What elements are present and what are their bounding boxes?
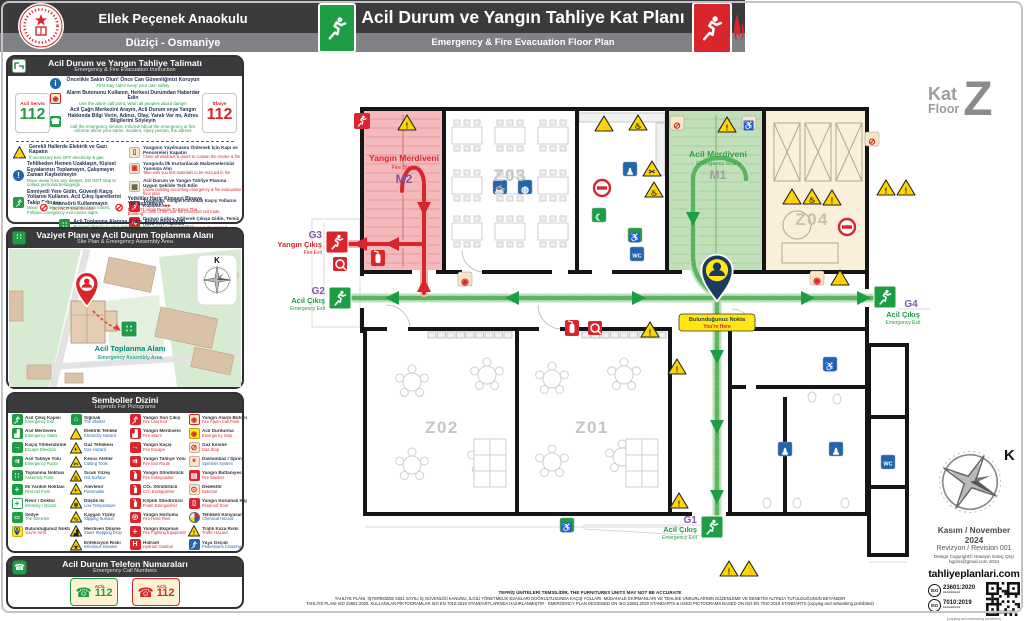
svg-text:♟: ♟ [832,446,840,456]
legend-label-en: Fire Extinguisher [143,476,184,480]
phone-112-icon: ☎ [12,560,27,580]
copyright-email: hgcitci@gmail.com 2024 [949,559,999,564]
svg-text:M2: M2 [396,172,413,186]
instruction-en: Leave building according emergency & fir… [143,188,242,197]
svg-text:◍: ◍ [521,184,529,194]
legend-item: ∿Kaygan YüzeySlipping Surface [70,510,129,524]
exitr-icon [129,414,141,425]
svg-text:♨: ♨ [650,189,657,198]
fire-dept-number: 112 [207,107,233,123]
legend-column: ⌂SığınakThe Shelter⚡Elektrik TehlikeElec… [70,413,129,552]
tri-icon: ∿ [70,511,82,523]
legend-item: Köpük SöndürücüFoam Extinguisher [129,496,188,510]
legend-label-en: Slipping Surface [84,517,115,521]
green-route-arrow [385,291,399,305]
legend-item: Acil Çıkış KapısıEmergency Exit [11,413,70,427]
instruction-item: ◉Alarm Butonunu Kullanın, Herkesi Durumd… [50,91,202,106]
legend-label-en: Electricity Hazard [84,434,117,438]
instruction-en: Move away from any danger, DO NOT stop t… [27,179,126,188]
triflame-icon [70,483,82,495]
instruction-item: ⊘Yetkililer Hariç Kimseyi Binaya Yaklaşt… [114,197,214,217]
legend-label-en: Infectious Disease [84,545,121,549]
exit-g2: G2Acil ÇıkışEmergency Exit [290,286,351,312]
gascut-icon: ⊘ [188,442,200,453]
instruction-text: Öncelikle Sakin Olun! Önce Can Güvenliği… [64,78,202,88]
legend-label-en: Fire Fighting Equipment [143,531,186,535]
router-icon: ⇉ [129,456,141,467]
ministry-logo [18,3,64,49]
assembly-point-icon: ∷ [12,231,26,250]
instruction-en: If necessary turn OFF electricity & gas [29,156,126,161]
legend-label-en: Fire Blanket [202,476,243,480]
legend-item: ☣Enfeksiyon RiskiInfectious Disease [70,538,129,552]
disclaimer: TEFRİŞ ÜNİTELERİ TEMSİLİDİR. THE FURNITU… [250,590,930,606]
svg-text:⚡: ⚡ [72,432,79,440]
site-map-svg: ∷Acil Toplanma AlanıEmergency Assembly A… [9,249,241,387]
accessible-wc-icon: ♿ [823,357,837,371]
svg-text:♟: ♟ [626,166,634,176]
fire-exit-icon [692,2,732,54]
tri-icon: ⚡ [70,428,82,440]
svg-text:Emergency Exit: Emergency Exit [290,306,326,312]
svg-text:⚡: ⚡ [599,122,609,132]
svg-text:♨: ♨ [634,122,641,131]
svg-text:◉: ◉ [813,275,821,285]
svg-text:WC: WC [632,253,641,259]
svg-text:K: K [214,256,220,265]
page-title: Acil Durum ve Yangın Tahliye Kat Planı [356,4,690,31]
rescue-icon: ▣ [129,163,140,174]
warn-icon: ⚡ [13,146,26,159]
aidg-icon: + [11,484,23,495]
warning-icon: ! [877,180,895,196]
dirg-icon: → [11,442,23,453]
shelter-icon: ⌂ [70,414,82,425]
legend-item: →Kaçış YönlendirmeEscape Direction [11,441,70,455]
svg-text:∷: ∷ [16,233,21,242]
svg-text:Fire Exit: Fire Exit [304,250,323,256]
instruction-item: ▯Yangının Yayılmasını Önlemek İçin Kapı … [129,145,242,159]
instruction-text: Yangında İlk Kurtarılacak Malzemeleriniz… [143,161,242,175]
phone-112-card: ☎ACİL112 [70,578,118,606]
room-label-z01: Z01 [575,418,609,437]
legend-item: ✂Kesici AletlerCutting Tools [70,455,129,469]
legend-item: Bulunduğunuz NoktaYou're Here [11,524,70,538]
legend-label-en: You're Here [25,531,70,535]
svg-text:⊘: ⊘ [868,136,876,146]
instruction-item: ⚡Gerekli Hallerde Elektrik ve Gazı Kapat… [13,145,126,160]
svg-text:✂: ✂ [73,462,78,468]
stairsg-icon: ▟ [11,428,23,439]
ambulance-number: 112 [20,107,46,123]
green-route-arrow [632,291,646,305]
instruction-item: iÖncelikle Sakin Olun! Önce Can Güvenliğ… [50,78,202,89]
floor-badge-kat: Kat [928,85,959,103]
svg-text:Acil Merdiveni: Acil Merdiveni [689,149,747,159]
legend-label-en: Sprinkler System [202,462,244,466]
svg-text:G4: G4 [904,299,918,310]
legend-item: +Yangın EkipmanFire Fighting Equipment [129,524,188,538]
instruction-en: Take with you first materials to be resc… [143,171,242,175]
ext-icon [129,484,141,495]
assembly-area-label-en: Emergency Assembly Area [98,355,162,361]
evacuation-plan-icon [12,59,26,78]
instructions-panel: Acil Durum ve Yangın Tahliye Talimatı Em… [6,55,244,224]
svg-text:Emergency Exit: Emergency Exit [885,320,921,326]
phone-number: 112 [157,589,175,599]
exit-g3: G3Yangın ÇıkışFire Exit [277,230,348,256]
iso-badge-23601: ISO 23601:2020■■■■■■■■■ [928,584,986,597]
exit-green-icon [318,3,356,53]
you-are-here-badge: Bulunduğunuz NoktaYou're Here [679,314,755,331]
fire-alarm-icon: ◉ [810,271,824,285]
legend-item: HHidrantHydrant Outdoor [129,538,188,552]
room-label-z02: Z02 [425,418,459,437]
legend-label-en: Emergency Stairs [25,434,57,438]
svg-text:!: ! [678,500,681,509]
legend-column: Yangın Son ÇıkışFire Last Exit▟Yangın Me… [129,413,188,552]
instruction-en: Call the emergency service, Informe abou… [64,125,202,134]
ambulance-112-card: Acil Servis 112 [15,93,50,133]
legend-label-en: Emergency Route [25,462,61,466]
slide-icon: ♿ [742,116,756,130]
phones-header: ☎ Acil Durum Telefon Numaraları Emergenc… [8,558,242,577]
stop-icon: ◉ [188,428,200,439]
stretch-icon: ▭ [11,512,23,523]
fire-hose-icon [588,321,602,335]
svg-text:You're Here: You're Here [703,324,731,330]
instruction-text: Yetkililer Hariç Kimseyi Binaya Yaklaştı… [128,197,214,217]
phone-112-card: ☎ACİL112 [132,578,180,606]
phones-body: ☎ACİL112☎ACİL112 [8,579,242,605]
warning-icon: ! [897,180,915,196]
instruction-item: !Tehlikeden Hemen Uzaklaşın, Kişisel Eşy… [13,162,126,187]
legend-panel: Semboller Dizini Legends For Pictograms … [6,392,244,553]
legend-item: ❄Düşük IsıLow Temperature [70,496,129,510]
svg-text:Yangın Çıkış: Yangın Çıkış [277,240,322,249]
room-label-z04: Z04 [795,210,829,229]
dirr-icon: → [129,442,141,453]
info-block: K Kasım / November 2024 Revizyon / Revis… [928,444,1020,610]
svg-text:!: ! [831,197,834,206]
legend-label-en: Escape Direction [25,448,66,452]
fire-extinguisher-icon [565,320,579,336]
svg-text:!: ! [193,531,195,537]
nolift-icon: ⊘ [38,202,49,213]
instruction-text: Tehlikeden Hemen Uzaklaşın, Kişisel Eşya… [27,162,126,187]
svg-text:Emergency Exit: Emergency Exit [662,535,698,541]
site-plan-title-en: Site Plan & Emergency Assembly Area [8,240,242,246]
ext-icon [129,470,141,481]
phones-title-en: Emergency Call Numbers [8,569,242,575]
legend-item: ⊙DedektörDetector [188,482,247,496]
legend-item: ▭SedyeThe Stretcher [11,510,70,524]
legend-label-en: Gas Stop [202,448,227,452]
ext-icon [129,498,141,509]
svg-text:!: ! [726,124,729,133]
instruction-en: Close all windows & doors to contain the… [143,155,242,159]
svg-text:⚡: ⚡ [15,151,23,159]
legend-item: ▯Yangın Korumalı KapıFireproof Door [188,496,247,510]
legend-label-en: Fire Hose Reel [143,517,178,521]
instructions-top-list: iÖncelikle Sakin Olun! Önce Can Güvenliğ… [50,78,202,136]
floor-letter: Z [963,78,992,121]
school-name: Ellek Peçenek Anaokulu [62,6,284,30]
blanket-icon: ▤ [188,470,200,481]
legend-item: Yaya GeçidiPedestrians Crossing [188,538,247,552]
svg-text:▟: ▟ [73,529,79,537]
legend-label-en: Traffic Hazard [202,531,239,535]
kitchen-staff-icon: ♟ [623,162,637,176]
phone-icon: ☎ [138,586,154,599]
divider [16,141,234,142]
svg-text:☾: ☾ [595,212,603,222]
assembly-icon: ∷ [11,470,23,481]
iso-badge-7010: ISO 7010:2019■■■■■■■■■ [928,599,986,612]
legend-item: ▟Yangın MerdiveniFire Stairs [129,427,188,441]
tri-icon: ✂ [70,456,82,468]
legend-item: ⚡Elektrik TehlikeElectricity Hazard [70,427,129,441]
hyd-icon: H [129,539,141,550]
instruction-item: ▦Acil Durum ve Yangın Tahliye Planına Uy… [129,178,242,197]
svg-text:!: ! [406,122,409,131]
mini-compass: K [197,255,237,305]
legend-label-en: Detector [202,490,222,494]
green-route-arrow [710,420,724,434]
boiler-room-zone [766,111,865,270]
warning-icon: ! [670,493,688,509]
legend-item: ◎Yangın HortumuFire Hose Reel [129,510,188,524]
room-label-z03: Z03 [493,166,527,185]
first-aid-icon: ☾ [592,208,606,222]
compass-north-letter: K [1004,447,1015,464]
stairsr-icon: ▟ [129,428,141,439]
svg-text:☎: ☎ [14,562,25,572]
legend-label-en: Hydrant Outdoor [143,545,173,549]
green-route-arrow [801,291,815,305]
svg-text:⚡: ⚡ [744,567,754,577]
legend-item: +Revir / DoktorInfirmary / Doctor [11,496,70,510]
triflame-icon [70,442,82,454]
legend-item: ⇉Acil Tahliye YoluEmergency Route [11,455,70,469]
legend-item: ◉Acil DurdurmaEmergency Stop [188,427,247,441]
assembly-area-label-tr: Acil Toplanma Alanı [95,344,166,353]
electricity-warning-icon: ⚡ [740,561,758,577]
door-icon: ▯ [129,147,140,158]
routeg-icon: ⇉ [11,456,23,467]
legend-label-en: The Shelter [84,420,105,424]
legend-header: Semboller Dizini Legends For Pictograms [8,394,242,413]
website: tahliyeplanlari.com [928,568,1020,580]
tri-icon: ! [188,525,200,537]
svg-text:⚡: ⚡ [787,195,797,205]
legend-grid: Acil Çıkış KapısıEmergency Exit▟Acil Mer… [11,413,241,552]
equip-icon: + [129,526,141,537]
svg-text:♿: ♿ [561,521,572,532]
svg-text:❄: ❄ [73,502,78,509]
disclaimer-line3: TAHLİYE PLANI ISO 23601:2020, KULLANILAN… [250,601,930,606]
green-route-arrow [505,291,519,305]
legend-label-en: Fire Stairs [143,434,181,438]
svg-text:Bulunduğunuz Nokta: Bulunduğunuz Nokta [689,317,746,323]
legend-label-en: Pedestrians Crossing [202,545,241,549]
phones-panel: ☎ Acil Durum Telefon Numaraları Emergenc… [6,556,244,609]
fdoor-icon: ▯ [188,498,200,509]
legend-column: ◉Yangın Alarm ButonuFire Alarm Call Poin… [188,413,247,552]
wc-female-icon: ♟ [778,442,792,456]
instruction-item: ☎Acil Çağrı Merkezini Arayın, Acil Durum… [50,108,202,133]
instruction-text: Yangının Yayılmasını Önlemek İçin Kapı v… [143,145,242,159]
exitg-icon [11,414,23,425]
accessible-icon: ♿ [628,228,642,242]
qr-code [986,582,1020,616]
legend-label-en: Stairs Stepping Drop [84,531,122,535]
legend-item: +İlk Yardım NoktasıFirst Aid Point [11,482,70,496]
no-entry-icon [839,219,855,235]
legend-item: →Yangın KaçışFire Escape [129,441,188,455]
svg-text:◉: ◉ [461,276,469,286]
alarm2-icon: ◉ [188,414,200,425]
wc-icon: WC [881,455,895,469]
info-icon: i [50,78,61,89]
fire-alarm-icon: ◉ [458,272,472,286]
legend-item: ▟Acil MerdiveniEmergency Stairs [11,427,70,441]
legend-label-en: Assembly Point [25,476,64,480]
instruction-text: Asansörü KullanmayınDO NOT Use the lifts [52,202,107,212]
svg-text:Acil Çıkış: Acil Çıkış [886,310,920,319]
legend-item: ⇉Yangın Tahliye YoluFire Exit Route [129,455,188,469]
svg-text:Emergency Stairs: Emergency Stairs [696,161,740,167]
ministry-emblem-icon [19,4,63,48]
svg-text:WC: WC [883,461,892,467]
legend-item: ▤Yangın BattaniyesiFire Blanket [188,469,247,483]
detect-icon: ⊙ [188,484,200,495]
legend-item: ∷Toplanma NoktasıAssembly Point [11,469,70,483]
legend-title-en: Legends For Pictograms [8,405,242,411]
fire-hose-icon [333,257,347,271]
legend-label-en: Fire Escape [143,448,172,452]
legend-label-en: First Aid Point [25,490,65,494]
sprink-icon: * [188,456,200,467]
building-footprint [65,373,83,383]
legend-label-en: Chemical Hazard [202,517,242,521]
legend-item: !Trafik Kaza RiskiTraffic Hazard [188,524,247,538]
floor-plan: !◉☕◍⚡♨♟✂♨☾♿WC⊘!♿⚡♨!⊘!!◉⚡!!!♿!⚡♿♟♟WCZ03Z0… [252,57,930,589]
fire-escape-icon [354,113,370,129]
instruction-item: ⊘Asansörü KullanmayınDO NOT Use the lift… [38,197,107,217]
tri-icon: ♨ [70,470,82,482]
instruction-en: First stay calm! Keep your own safety [64,84,202,89]
phone-icon: ☎ [50,116,61,127]
svg-text:∷: ∷ [126,324,132,335]
svg-text:♨: ♨ [73,475,78,482]
legend-label-en: Emergency Exit [25,420,61,424]
legend-item: AlevlenirFlammable [70,482,129,496]
legend-item: CO₂ SöndürücüCO₂ Extinguisher [129,482,188,496]
svg-text:⚡: ⚡ [835,276,845,286]
svg-text:♿: ♿ [743,119,754,130]
instruction-text: Alarm Butonunu Kullanın, Herkesi Durumda… [64,91,202,106]
legend-label-en: Cutting Tools [84,462,113,466]
assembly-point-icon: ∷ [121,321,137,337]
legend-item: ⊘Gaz KesmeGas Stop [188,441,247,455]
legend-item: Yangın SöndürücüFire Extinguisher [129,469,188,483]
gas-stop-icon: ⊘ [670,116,684,130]
wc-male-icon: ♟ [829,442,843,456]
legend-label-en: The Stretcher [25,517,50,521]
legend-item: ♨Sıcak YüzeyHot Surface [70,469,129,483]
instruction-text: Acil Çağrı Merkezini Arayın, Acil Durum … [64,108,202,133]
exit-g4: G4Acil ÇıkışEmergency Exit [874,286,921,326]
svg-text:∿: ∿ [73,517,78,523]
svg-text:!: ! [649,329,652,338]
legend-item: Tehlikeli KimyasalChemical Hazard [188,510,247,524]
legend-label-en: CO₂ Extinguisher [143,490,177,494]
svg-text:☕: ☕ [494,183,505,194]
legend-label-en: Infirmary / Doctor [25,504,56,508]
legend-item: ◉Yangın Alarm ButonuFire Alarm Call Poin… [188,413,247,427]
legend-label-en: Fire Last Exit [143,420,180,424]
instruction-en: DO NOT Use the lifts [52,207,107,212]
green-route-arrow [710,350,724,364]
wc-icon: WC [630,247,644,261]
instruction-item: ▣Yangında İlk Kurtarılacak Malzemelerini… [129,161,242,175]
legend-label-en: Low Temperature [84,504,116,508]
svg-text:♿: ♿ [824,360,835,371]
page-subtitle: Emergency & Fire Evacuation Floor Plan [356,34,690,51]
doc-icon: + [11,498,23,509]
copyright-line: Design Copyright© Hüseyin Güniç Çitçi [934,554,1014,559]
svg-text:!: ! [885,187,888,196]
warning-icon: ! [720,561,738,577]
site-plan-panel: ∷ Vaziyet Planı ve Acil Durum Toplanma A… [6,227,244,389]
floor-badge-floor: Floor [928,103,959,116]
fire-extinguisher-icon [371,250,385,266]
ped-icon [188,539,200,550]
svg-text:♟: ♟ [781,446,789,456]
gas-stop-icon: ⊘ [865,132,879,146]
instruction-en: DO NOT Allow People To Enter The Buildin… [128,208,214,217]
site-map: ∷Acil Toplanma AlanıEmergency Assembly A… [9,249,241,392]
instruction-tr: Acil Çağrı Merkezini Arayın, Acil Durum … [64,108,202,124]
no-entry-icon [594,180,610,196]
svg-text:!: ! [676,366,679,375]
svg-text:Acil Çıkış: Acil Çıkış [291,296,325,305]
green-route-arrow [857,291,871,305]
compass-rose-icon: K [930,444,1018,518]
red-route-arrow [417,278,431,292]
iso-badges: ISO 23601:2020■■■■■■■■■ ISO 7010:2019■■■… [928,582,1020,616]
phone-icon: ☎ [76,586,92,599]
instructions-title-en: Emergency & Fire Evacuation Instruction [8,68,242,74]
legend-label-en: Gas Hazard [84,448,113,452]
hot-surface-warning-icon: ♨ [645,182,663,198]
tri-icon: ☣ [70,539,82,551]
svg-text:⊘: ⊘ [673,120,681,130]
legend-item: Gaz TehlikesiGas Hazard [70,441,129,455]
chem-icon [188,512,200,523]
exit-g1: G1Acil ÇıkışEmergency Exit [662,515,723,541]
noenter-icon: ⊘ [114,202,125,213]
instruction-text: Gerekli Hallerde Elektrik ve Gazı Kapatı… [29,145,126,160]
phone-number: 112 [95,589,113,599]
svg-text:✂: ✂ [649,168,656,177]
tri-icon: ▟ [70,525,82,537]
info2-icon: ! [13,170,24,181]
instruction-en: Use the alarm call point, Warn all peopl… [64,102,202,107]
svg-text:Acil Çıkış: Acil Çıkış [663,525,697,534]
svg-text:!: ! [905,187,908,196]
